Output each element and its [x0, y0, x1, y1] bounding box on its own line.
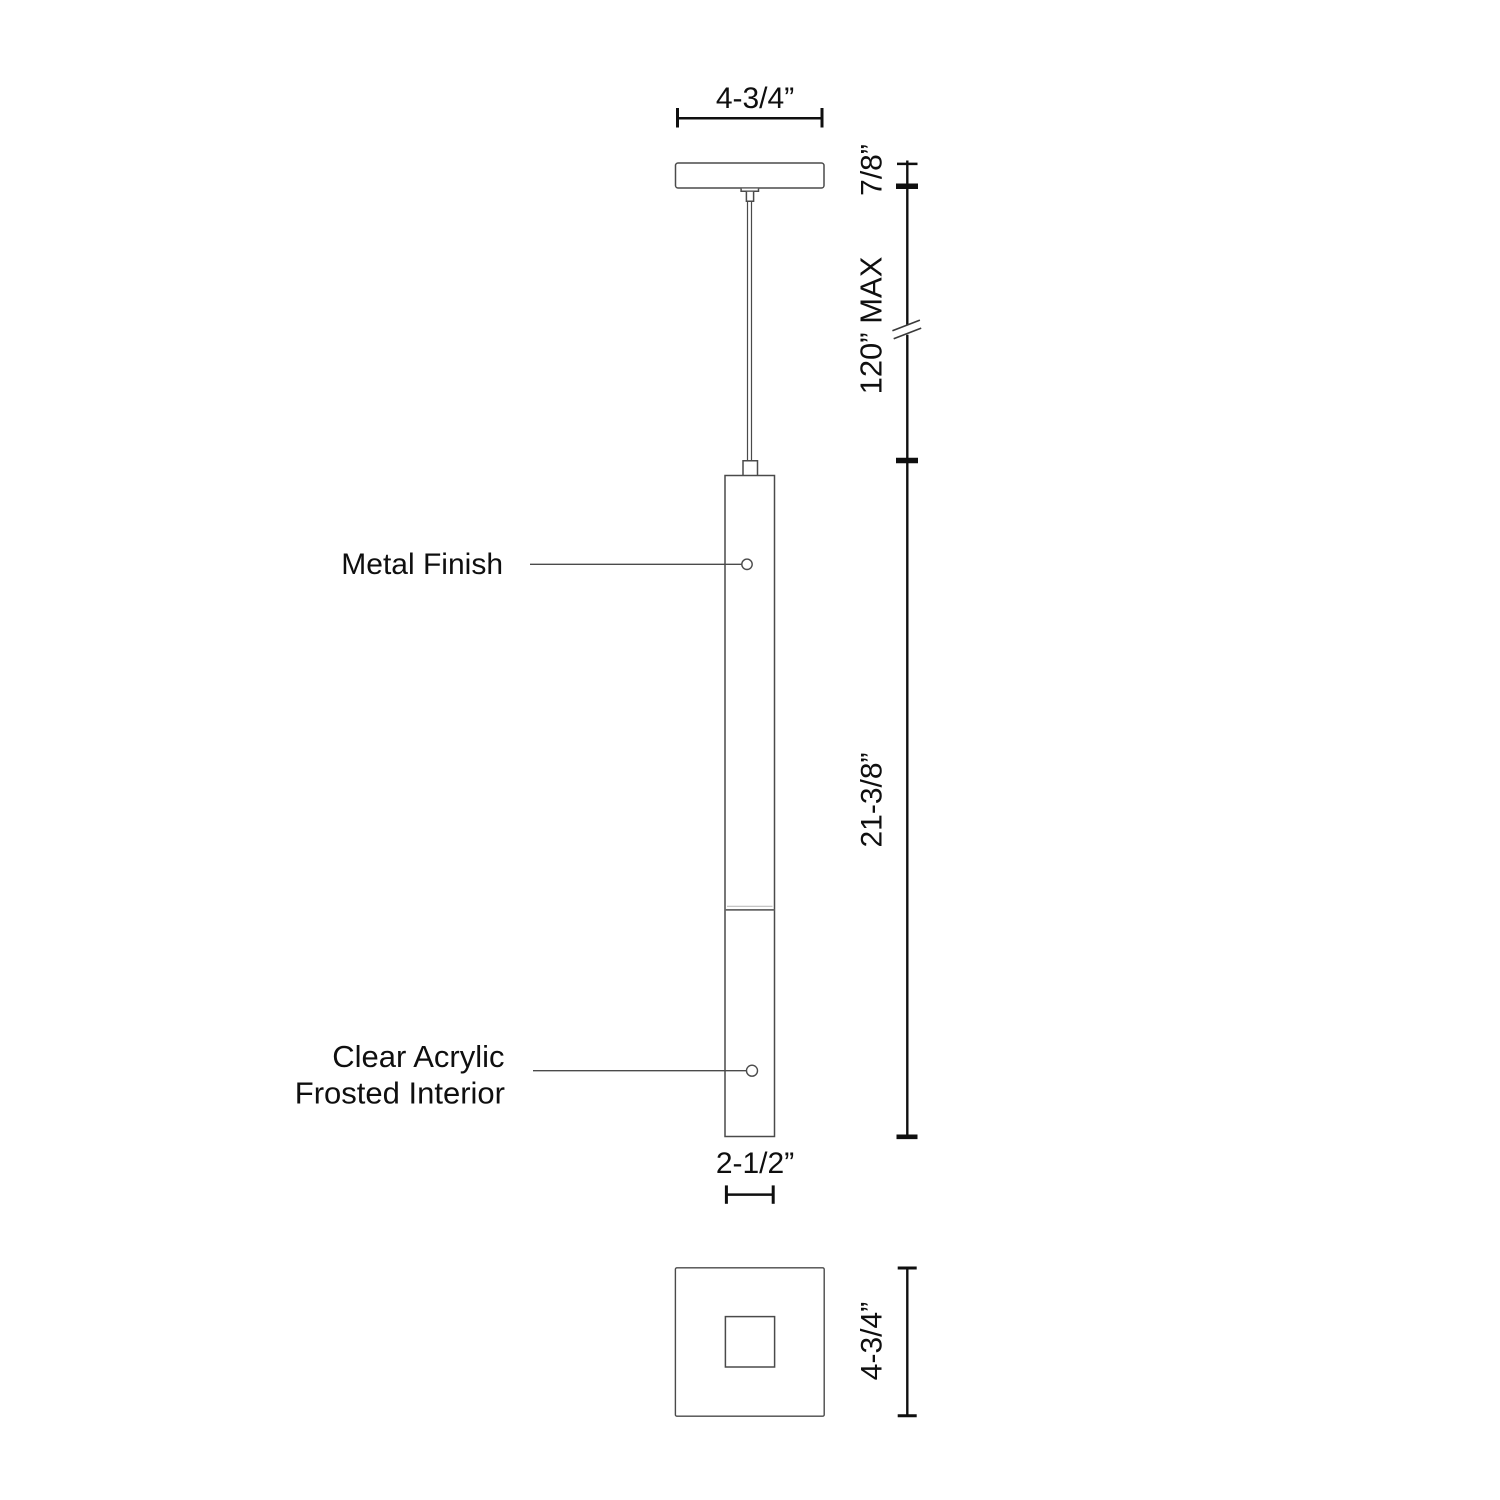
svg-text:Clear Acrylic: Clear Acrylic [332, 1039, 504, 1074]
svg-text:2-1/2”: 2-1/2” [716, 1147, 794, 1180]
svg-text:4-3/4”: 4-3/4” [716, 82, 794, 115]
svg-text:7/8”: 7/8” [856, 144, 889, 196]
svg-text:Frosted Interior: Frosted Interior [295, 1076, 505, 1111]
svg-text:4-3/4”: 4-3/4” [856, 1302, 889, 1380]
svg-text:21-3/8”: 21-3/8” [856, 752, 889, 847]
svg-text:Metal Finish: Metal Finish [341, 548, 503, 581]
svg-text:120” MAX: 120” MAX [854, 256, 889, 394]
